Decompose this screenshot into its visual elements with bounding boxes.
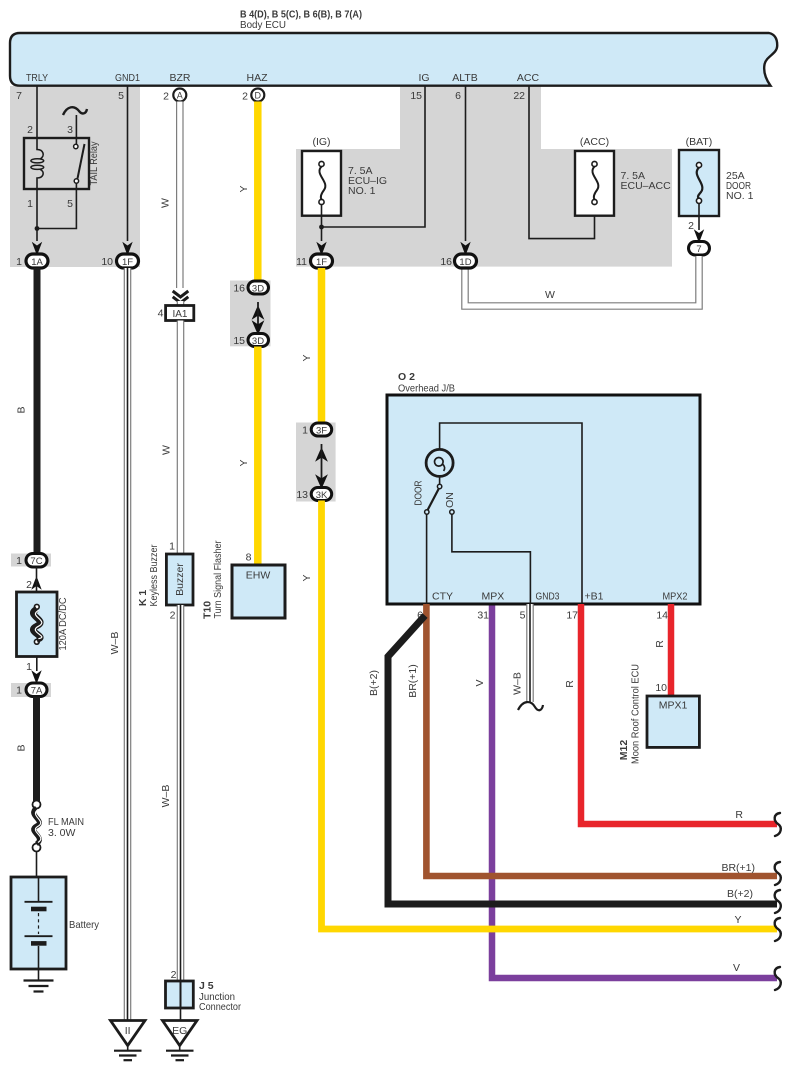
svg-text:2: 2 xyxy=(170,610,176,622)
svg-text:IG: IG xyxy=(418,72,429,84)
svg-text:5: 5 xyxy=(520,610,526,622)
svg-text:GND1: GND1 xyxy=(115,72,140,84)
svg-text:4: 4 xyxy=(158,308,164,320)
svg-text:ON: ON xyxy=(444,492,456,508)
svg-text:22: 22 xyxy=(513,90,525,102)
svg-text:31: 31 xyxy=(477,610,489,622)
svg-text:EG: EG xyxy=(172,1025,187,1037)
svg-text:Y: Y xyxy=(238,185,250,192)
svg-text:W: W xyxy=(160,198,172,208)
svg-text:1F: 1F xyxy=(316,257,327,268)
svg-text:W–B: W–B xyxy=(109,632,121,655)
svg-text:MPX1: MPX1 xyxy=(659,700,688,712)
svg-text:1F: 1F xyxy=(122,257,133,268)
svg-text:M12: M12 xyxy=(618,740,630,761)
svg-text:2: 2 xyxy=(27,124,33,136)
svg-text:MPX: MPX xyxy=(482,591,505,603)
svg-text:8: 8 xyxy=(246,552,252,564)
svg-text:11: 11 xyxy=(296,256,307,268)
svg-text:1: 1 xyxy=(16,685,22,697)
svg-text:7A: 7A xyxy=(31,686,43,697)
svg-text:1: 1 xyxy=(16,256,22,268)
svg-text:3K: 3K xyxy=(316,490,328,501)
svg-text:ALTB: ALTB xyxy=(452,72,477,84)
svg-text:(IG): (IG) xyxy=(312,136,330,148)
svg-text:1: 1 xyxy=(26,661,32,673)
svg-text:3F: 3F xyxy=(316,426,327,437)
svg-text:Buzzer: Buzzer xyxy=(174,563,186,596)
svg-text:Y: Y xyxy=(734,914,741,926)
svg-text:IA1: IA1 xyxy=(172,309,187,320)
svg-text:5: 5 xyxy=(118,90,124,102)
svg-text:16: 16 xyxy=(440,256,452,268)
svg-text:NO. 1: NO. 1 xyxy=(726,190,754,202)
svg-text:1: 1 xyxy=(169,541,175,553)
svg-text:+B1: +B1 xyxy=(585,591,604,603)
svg-text:CTY: CTY xyxy=(432,591,453,603)
svg-text:W–B: W–B xyxy=(160,785,172,808)
svg-text:B: B xyxy=(16,406,28,413)
svg-text:1D: 1D xyxy=(459,257,471,268)
svg-text:10: 10 xyxy=(101,256,113,268)
svg-text:Y: Y xyxy=(238,459,250,466)
svg-text:V: V xyxy=(733,962,740,974)
svg-text:B(+2): B(+2) xyxy=(368,670,380,696)
svg-text:(ACC): (ACC) xyxy=(580,136,609,148)
svg-text:1A: 1A xyxy=(31,257,43,268)
svg-text:15: 15 xyxy=(233,335,245,347)
svg-text:NO. 1: NO. 1 xyxy=(348,185,376,197)
svg-text:Moon Roof Control ECU: Moon Roof Control ECU xyxy=(630,664,642,764)
svg-text:V: V xyxy=(474,679,486,686)
svg-text:3: 3 xyxy=(67,124,73,136)
svg-text:2: 2 xyxy=(688,220,694,232)
svg-text:Y: Y xyxy=(301,354,313,361)
svg-text:(BAT): (BAT) xyxy=(686,136,713,148)
svg-text:W–B: W–B xyxy=(512,672,524,695)
svg-text:B: B xyxy=(16,744,28,751)
svg-text:7C: 7C xyxy=(30,556,42,567)
svg-text:7: 7 xyxy=(16,90,22,102)
svg-text:5: 5 xyxy=(67,198,73,210)
svg-text:120A DC/DC: 120A DC/DC xyxy=(57,597,69,650)
svg-text:15: 15 xyxy=(410,90,422,102)
svg-text:BZR: BZR xyxy=(170,72,191,84)
svg-text:II: II xyxy=(125,1025,131,1037)
svg-text:R: R xyxy=(564,680,576,688)
svg-text:W: W xyxy=(161,445,173,455)
svg-text:16: 16 xyxy=(233,283,245,295)
svg-text:A: A xyxy=(177,91,183,101)
svg-text:2: 2 xyxy=(242,91,248,103)
svg-text:3. 0W: 3. 0W xyxy=(48,827,76,839)
svg-text:1: 1 xyxy=(27,198,33,210)
svg-text:BR(+1): BR(+1) xyxy=(721,862,755,874)
svg-text:B(+2): B(+2) xyxy=(727,888,753,900)
svg-text:MPX2: MPX2 xyxy=(663,591,688,603)
svg-text:3D: 3D xyxy=(252,336,264,347)
svg-text:Battery: Battery xyxy=(69,919,100,931)
svg-text:14: 14 xyxy=(656,610,668,622)
svg-text:2: 2 xyxy=(171,969,177,981)
svg-text:Turn Signal Flasher: Turn Signal Flasher xyxy=(212,540,224,618)
svg-text:7: 7 xyxy=(696,244,701,255)
svg-text:Y: Y xyxy=(301,574,313,581)
svg-text:ECU–ACC: ECU–ACC xyxy=(621,180,672,192)
svg-text:2: 2 xyxy=(26,579,32,591)
svg-text:2: 2 xyxy=(163,91,169,103)
svg-text:Body ECU: Body ECU xyxy=(240,19,286,31)
svg-text:3D: 3D xyxy=(252,284,264,295)
svg-text:DOOR: DOOR xyxy=(413,480,425,505)
svg-text:ACC: ACC xyxy=(517,72,540,84)
svg-text:6: 6 xyxy=(455,90,461,102)
svg-text:HAZ: HAZ xyxy=(247,72,269,84)
svg-text:BR(+1): BR(+1) xyxy=(407,664,419,698)
svg-text:TRLY: TRLY xyxy=(26,72,48,84)
svg-text:GND3: GND3 xyxy=(536,591,560,603)
svg-text:1: 1 xyxy=(302,425,308,437)
svg-text:W: W xyxy=(545,289,555,301)
svg-text:R: R xyxy=(735,809,743,821)
svg-text:Connector: Connector xyxy=(199,1001,241,1013)
svg-text:EHW: EHW xyxy=(246,570,271,582)
svg-text:TAIL Relay: TAIL Relay xyxy=(88,141,100,186)
svg-text:R: R xyxy=(654,640,666,648)
svg-text:Overhead J/B: Overhead J/B xyxy=(398,383,455,395)
svg-text:13: 13 xyxy=(296,489,308,501)
svg-text:D: D xyxy=(255,91,262,101)
svg-text:Keyless Buzzer: Keyless Buzzer xyxy=(148,544,160,606)
svg-text:17: 17 xyxy=(566,610,578,622)
svg-text:10: 10 xyxy=(655,682,667,694)
svg-text:1: 1 xyxy=(16,555,22,567)
svg-text:O 2: O 2 xyxy=(398,371,415,383)
